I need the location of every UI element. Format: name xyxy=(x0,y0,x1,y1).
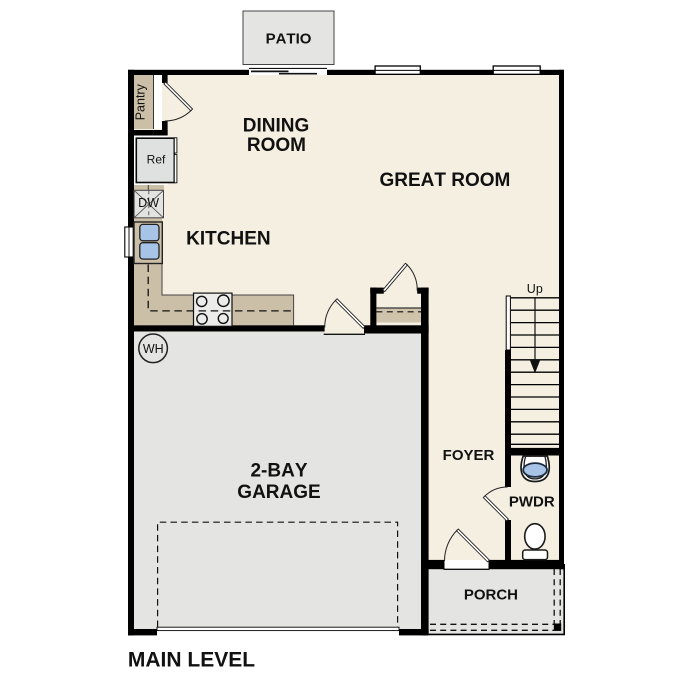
svg-text:Up: Up xyxy=(527,282,543,296)
svg-text:KITCHEN: KITCHEN xyxy=(186,228,270,249)
svg-text:WH: WH xyxy=(143,342,164,356)
svg-text:Ref: Ref xyxy=(147,152,166,166)
svg-text:PATIO: PATIO xyxy=(266,31,312,48)
svg-text:DW: DW xyxy=(138,196,159,210)
svg-text:GARAGE: GARAGE xyxy=(237,482,320,503)
svg-text:ROOM: ROOM xyxy=(247,135,306,156)
svg-text:PORCH: PORCH xyxy=(464,586,518,603)
svg-text:Pantry: Pantry xyxy=(134,83,148,120)
svg-text:GREAT ROOM: GREAT ROOM xyxy=(379,170,510,191)
svg-text:2-BAY: 2-BAY xyxy=(250,461,307,482)
svg-text:PWDR: PWDR xyxy=(509,493,555,510)
svg-text:MAIN LEVEL: MAIN LEVEL xyxy=(128,649,255,672)
svg-text:FOYER: FOYER xyxy=(443,447,495,464)
svg-text:DINING: DINING xyxy=(243,115,310,136)
